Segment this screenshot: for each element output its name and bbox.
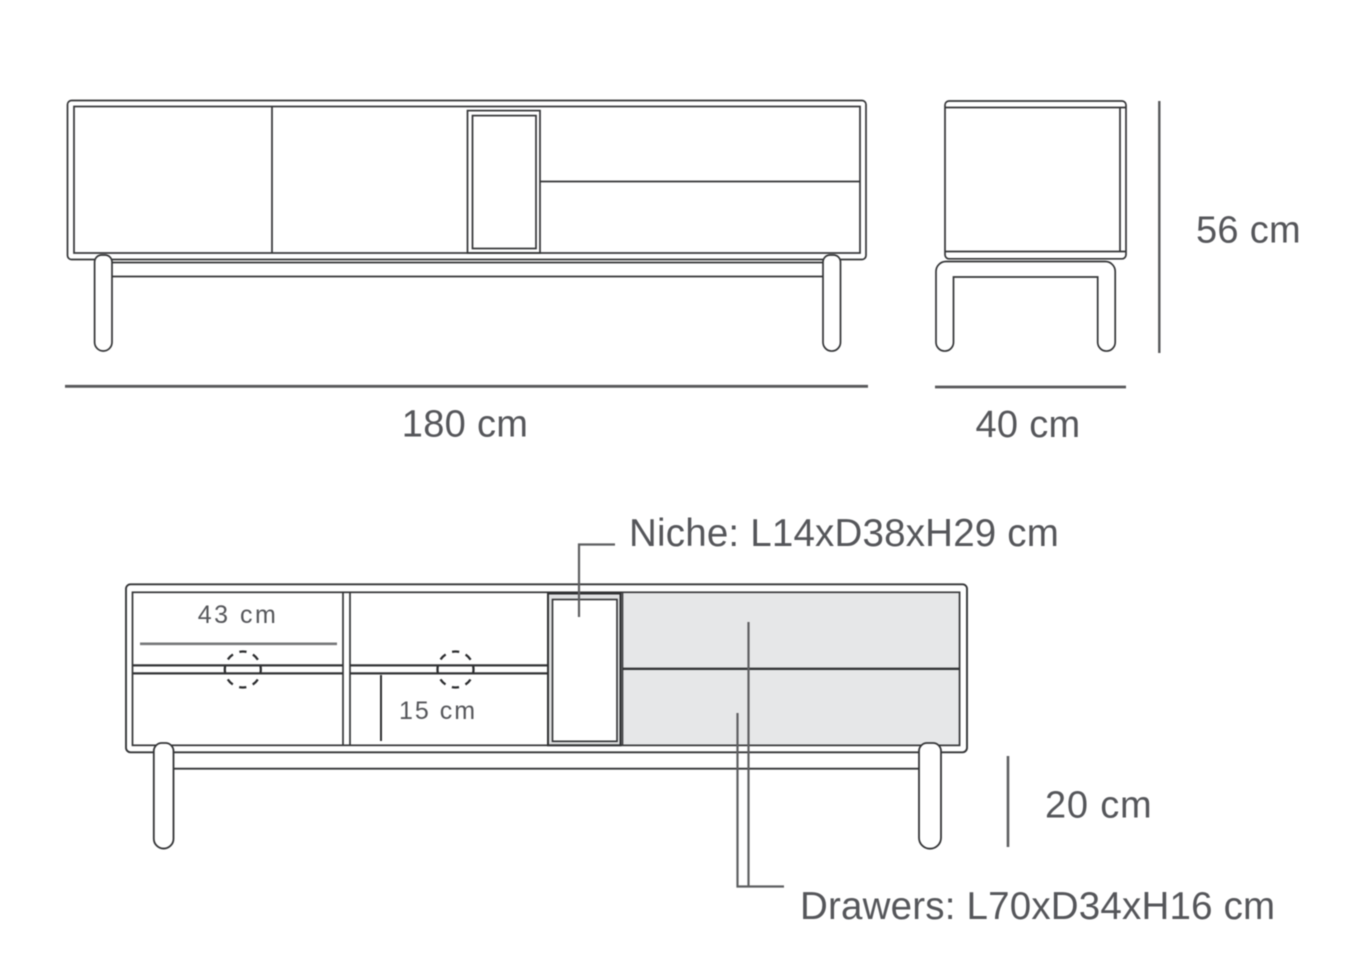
svg-text:56 cm: 56 cm [1196,210,1301,252]
svg-text:Niche: L14xD38xH29 cm: Niche: L14xD38xH29 cm [629,512,1059,555]
svg-text:Drawers: L70xD34xH16 cm: Drawers: L70xD34xH16 cm [800,885,1275,928]
svg-text:43 cm: 43 cm [198,601,279,629]
svg-text:40 cm: 40 cm [976,404,1081,446]
svg-text:15 cm: 15 cm [399,697,477,725]
svg-text:20 cm: 20 cm [1045,785,1152,827]
svg-text:180 cm: 180 cm [402,404,528,446]
